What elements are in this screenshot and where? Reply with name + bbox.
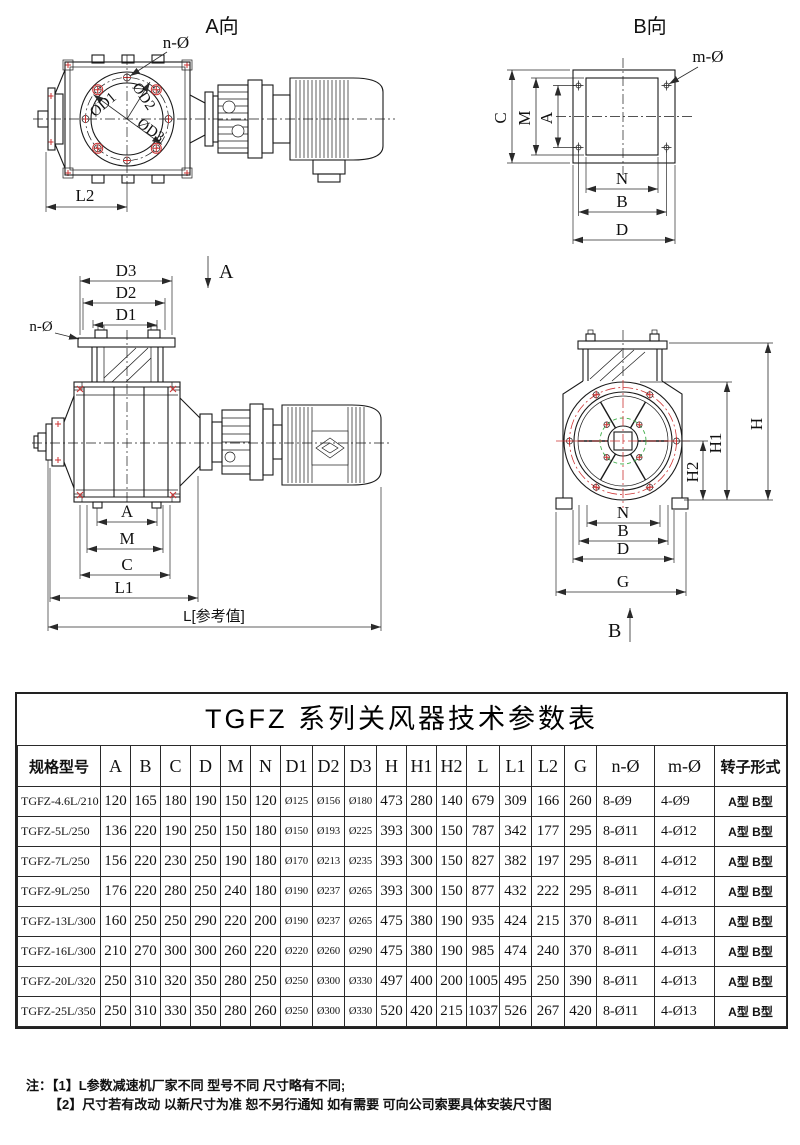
value-cell: 382 <box>500 847 532 877</box>
dim-label-m: M <box>515 110 534 125</box>
value-cell: Ø193 <box>313 817 345 847</box>
value-cell: Ø237 <box>313 907 345 937</box>
value-cell: Ø235 <box>345 847 377 877</box>
value-cell: 310 <box>131 997 161 1027</box>
model-cell: TGFZ-4.6L/210 <box>18 787 101 817</box>
value-cell: Ø250 <box>281 967 313 997</box>
value-cell: 220 <box>251 937 281 967</box>
dim-label-c-front: C <box>121 555 132 574</box>
hole-count-label: n-Ø <box>163 33 189 52</box>
datasheet-page: A向 ØD1 ØD2 ØD3 n-Ø <box>0 0 800 1145</box>
value-cell: A型 B型 <box>715 877 787 907</box>
value-cell: 390 <box>565 967 597 997</box>
value-cell: 8-Ø11 <box>597 907 655 937</box>
value-cell: 190 <box>437 937 467 967</box>
value-cell: 250 <box>532 967 565 997</box>
value-cell: A型 B型 <box>715 787 787 817</box>
value-cell: 300 <box>161 937 191 967</box>
value-cell: 330 <box>161 997 191 1027</box>
value-cell: 8-Ø11 <box>597 847 655 877</box>
value-cell: 295 <box>565 847 597 877</box>
value-cell: 176 <box>101 877 131 907</box>
table-header-row: 规格型号ABCDMND1D2D3HH1H2LL1L2Gn-Øm-Ø转子形式 <box>18 746 787 787</box>
value-cell: 215 <box>532 907 565 937</box>
dim-label-l1: L1 <box>115 578 134 597</box>
value-cell: 150 <box>437 817 467 847</box>
model-cell: TGFZ-13L/300 <box>18 907 101 937</box>
value-cell: 280 <box>221 997 251 1027</box>
value-cell: 180 <box>251 877 281 907</box>
value-cell: 350 <box>191 997 221 1027</box>
value-cell: 250 <box>101 967 131 997</box>
value-cell: 8-Ø11 <box>597 967 655 997</box>
value-cell: 290 <box>191 907 221 937</box>
note-1-text: 【1】L参数减速机厂家不同 型号不同 尺寸略有不同; <box>52 1078 345 1093</box>
value-cell: Ø190 <box>281 907 313 937</box>
value-cell: 220 <box>131 847 161 877</box>
table-row: TGFZ-4.6L/210120165180190150120Ø125Ø156Ø… <box>18 787 787 817</box>
value-cell: 250 <box>191 877 221 907</box>
value-cell: 280 <box>161 877 191 907</box>
value-cell: Ø170 <box>281 847 313 877</box>
dim-label-c: C <box>491 112 510 123</box>
value-cell: 787 <box>467 817 500 847</box>
value-cell: 270 <box>131 937 161 967</box>
value-cell: 370 <box>565 907 597 937</box>
end-view-drawing: H2 H1 H N B D G B <box>556 330 773 642</box>
dim-label-a-front: A <box>121 502 134 521</box>
value-cell: Ø190 <box>281 877 313 907</box>
value-cell: 4-Ø13 <box>655 997 715 1027</box>
value-cell: 400 <box>407 967 437 997</box>
value-cell: 215 <box>437 997 467 1027</box>
dim-label-m-front: M <box>119 529 134 548</box>
value-cell: 309 <box>500 787 532 817</box>
model-cell: TGFZ-9L/250 <box>18 877 101 907</box>
front-view-drawing: A D3 D2 D1 n-Ø <box>29 256 392 631</box>
table-row: TGFZ-13L/300160250250290220200Ø190Ø237Ø2… <box>18 907 787 937</box>
view-b-drawing: B向 m-Ø C M A N B D <box>491 15 724 244</box>
hole-count-label-m: m-Ø <box>692 47 723 66</box>
dim-label-h1: H1 <box>706 433 725 454</box>
value-cell: 827 <box>467 847 500 877</box>
value-cell: 220 <box>131 817 161 847</box>
dim-label-h2: H2 <box>683 462 702 483</box>
value-cell: 4-Ø13 <box>655 967 715 997</box>
value-cell: A型 B型 <box>715 997 787 1027</box>
value-cell: Ø150 <box>281 817 313 847</box>
dim-label-d2: D2 <box>116 283 137 302</box>
note-line-2: 【2】尺寸若有改动 以新尺寸为准 恕不另行通知 如有需要 可向公司索要具体安装尺… <box>49 1095 552 1114</box>
col-header: 规格型号 <box>18 746 101 787</box>
value-cell: Ø213 <box>313 847 345 877</box>
dim-label-h: H <box>747 418 766 430</box>
value-cell: Ø260 <box>313 937 345 967</box>
value-cell: 120 <box>101 787 131 817</box>
value-cell: 320 <box>161 967 191 997</box>
value-cell: 474 <box>500 937 532 967</box>
spec-table-section: TGFZ 系列关风器技术参数表 规格型号ABCDMND1D2D3HH1H2LL1… <box>15 692 788 1029</box>
value-cell: 1005 <box>467 967 500 997</box>
value-cell: 370 <box>565 937 597 967</box>
col-header: D <box>191 746 221 787</box>
col-header: D3 <box>345 746 377 787</box>
view-b-title: B向 <box>633 15 666 38</box>
note-2-text: 【2】尺寸若有改动 以新尺寸为准 恕不另行通知 如有需要 可向公司索要具体安装尺… <box>49 1097 552 1112</box>
value-cell: 260 <box>565 787 597 817</box>
value-cell: Ø265 <box>345 877 377 907</box>
model-cell: TGFZ-25L/350 <box>18 997 101 1027</box>
value-cell: 250 <box>191 847 221 877</box>
value-cell: 473 <box>377 787 407 817</box>
value-cell: A型 B型 <box>715 847 787 877</box>
value-cell: 877 <box>467 877 500 907</box>
value-cell: 280 <box>221 967 251 997</box>
value-cell: 260 <box>221 937 251 967</box>
value-cell: Ø225 <box>345 817 377 847</box>
value-cell: 300 <box>407 847 437 877</box>
value-cell: 150 <box>221 787 251 817</box>
value-cell: 197 <box>532 847 565 877</box>
table-row: TGFZ-5L/250136220190250150180Ø150Ø193Ø22… <box>18 817 787 847</box>
value-cell: 250 <box>101 997 131 1027</box>
col-header: A <box>101 746 131 787</box>
value-cell: 250 <box>191 817 221 847</box>
value-cell: 260 <box>251 997 281 1027</box>
value-cell: 200 <box>251 907 281 937</box>
value-cell: 156 <box>101 847 131 877</box>
table-title: TGFZ 系列关风器技术参数表 <box>17 694 786 745</box>
dim-label-l-ref: L[参考值] <box>183 608 245 625</box>
notes: 注：【1】L参数减速机厂家不同 型号不同 尺寸略有不同; 【2】尺寸若有改动 以… <box>26 1076 552 1114</box>
section-marker-a: A <box>219 261 234 283</box>
col-header: N <box>251 746 281 787</box>
value-cell: 4-Ø13 <box>655 937 715 967</box>
value-cell: 350 <box>191 967 221 997</box>
value-cell: 432 <box>500 877 532 907</box>
value-cell: 165 <box>131 787 161 817</box>
note-prefix: 注： <box>26 1078 52 1093</box>
table-row: TGFZ-25L/350250310330350280260Ø250Ø300Ø3… <box>18 997 787 1027</box>
value-cell: 190 <box>221 847 251 877</box>
dim-label-d1: D1 <box>116 305 137 324</box>
hole-count-label-front: n-Ø <box>29 319 52 335</box>
value-cell: 220 <box>131 877 161 907</box>
value-cell: Ø156 <box>313 787 345 817</box>
table-row: TGFZ-9L/250176220280250240180Ø190Ø237Ø26… <box>18 877 787 907</box>
value-cell: 4-Ø12 <box>655 877 715 907</box>
value-cell: 250 <box>131 907 161 937</box>
value-cell: 475 <box>377 907 407 937</box>
value-cell: 180 <box>251 817 281 847</box>
spec-table: 规格型号ABCDMND1D2D3HH1H2LL1L2Gn-Øm-Ø转子形式 TG… <box>17 745 787 1027</box>
value-cell: 300 <box>407 877 437 907</box>
value-cell: 4-Ø13 <box>655 907 715 937</box>
value-cell: 230 <box>161 847 191 877</box>
value-cell: 250 <box>251 967 281 997</box>
col-header: n-Ø <box>597 746 655 787</box>
value-cell: Ø237 <box>313 877 345 907</box>
value-cell: 526 <box>500 997 532 1027</box>
value-cell: 190 <box>161 817 191 847</box>
col-header: L1 <box>500 746 532 787</box>
value-cell: 520 <box>377 997 407 1027</box>
note-line-1: 注：【1】L参数减速机厂家不同 型号不同 尺寸略有不同; <box>26 1076 552 1095</box>
dim-label-g: G <box>617 572 629 591</box>
value-cell: 380 <box>407 937 437 967</box>
col-header: H1 <box>407 746 437 787</box>
dim-label-b: B <box>616 192 627 211</box>
value-cell: 240 <box>532 937 565 967</box>
col-header: B <box>131 746 161 787</box>
value-cell: 240 <box>221 877 251 907</box>
value-cell: 136 <box>101 817 131 847</box>
value-cell: 177 <box>532 817 565 847</box>
value-cell: A型 B型 <box>715 907 787 937</box>
value-cell: 985 <box>467 937 500 967</box>
col-header: m-Ø <box>655 746 715 787</box>
value-cell: 140 <box>437 787 467 817</box>
value-cell: A型 B型 <box>715 817 787 847</box>
model-cell: TGFZ-5L/250 <box>18 817 101 847</box>
value-cell: Ø330 <box>345 997 377 1027</box>
value-cell: 420 <box>565 997 597 1027</box>
value-cell: 495 <box>500 967 532 997</box>
value-cell: 497 <box>377 967 407 997</box>
col-header: D1 <box>281 746 313 787</box>
value-cell: Ø265 <box>345 907 377 937</box>
view-a-drawing: A向 ØD1 ØD2 ØD3 n-Ø <box>33 15 395 212</box>
value-cell: 220 <box>221 907 251 937</box>
value-cell: A型 B型 <box>715 937 787 967</box>
value-cell: 4-Ø9 <box>655 787 715 817</box>
col-header: H <box>377 746 407 787</box>
value-cell: 4-Ø12 <box>655 817 715 847</box>
value-cell: 210 <box>101 937 131 967</box>
col-header: H2 <box>437 746 467 787</box>
col-header: D2 <box>313 746 345 787</box>
value-cell: Ø290 <box>345 937 377 967</box>
dim-label-n-end: N <box>617 503 629 522</box>
value-cell: 380 <box>407 907 437 937</box>
value-cell: 166 <box>532 787 565 817</box>
value-cell: 150 <box>437 847 467 877</box>
value-cell: 1037 <box>467 997 500 1027</box>
dim-label-d-end: D <box>617 539 629 558</box>
value-cell: 8-Ø11 <box>597 877 655 907</box>
value-cell: 267 <box>532 997 565 1027</box>
model-cell: TGFZ-7L/250 <box>18 847 101 877</box>
col-header: L2 <box>532 746 565 787</box>
col-header: 转子形式 <box>715 746 787 787</box>
value-cell: 935 <box>467 907 500 937</box>
value-cell: 150 <box>221 817 251 847</box>
col-header: C <box>161 746 191 787</box>
dim-label-a: A <box>537 111 556 124</box>
value-cell: Ø250 <box>281 997 313 1027</box>
table-row: TGFZ-20L/320250310320350280250Ø250Ø300Ø3… <box>18 967 787 997</box>
section-marker-b: B <box>608 620 621 642</box>
table-row: TGFZ-7L/250156220230250190180Ø170Ø213Ø23… <box>18 847 787 877</box>
value-cell: 342 <box>500 817 532 847</box>
value-cell: 393 <box>377 877 407 907</box>
value-cell: 475 <box>377 937 407 967</box>
value-cell: 8-Ø11 <box>597 817 655 847</box>
value-cell: 180 <box>251 847 281 877</box>
value-cell: Ø220 <box>281 937 313 967</box>
value-cell: 420 <box>407 997 437 1027</box>
value-cell: Ø330 <box>345 967 377 997</box>
dim-label-d3: D3 <box>116 261 137 280</box>
table-row: TGFZ-16L/300210270300300260220Ø220Ø260Ø2… <box>18 937 787 967</box>
dim-label-d: D <box>616 220 628 239</box>
dim-label-n: N <box>616 169 628 188</box>
table-body: TGFZ-4.6L/210120165180190150120Ø125Ø156Ø… <box>18 787 787 1027</box>
value-cell: 150 <box>437 877 467 907</box>
value-cell: 8-Ø11 <box>597 937 655 967</box>
model-cell: TGFZ-20L/320 <box>18 967 101 997</box>
value-cell: Ø300 <box>313 997 345 1027</box>
value-cell: Ø300 <box>313 967 345 997</box>
value-cell: 200 <box>437 967 467 997</box>
dim-label-l2: L2 <box>76 186 95 205</box>
model-cell: TGFZ-16L/300 <box>18 937 101 967</box>
value-cell: 8-Ø9 <box>597 787 655 817</box>
value-cell: 4-Ø12 <box>655 847 715 877</box>
value-cell: 300 <box>191 937 221 967</box>
value-cell: A型 B型 <box>715 967 787 997</box>
col-header: L <box>467 746 500 787</box>
value-cell: 295 <box>565 817 597 847</box>
value-cell: 310 <box>131 967 161 997</box>
value-cell: 250 <box>161 907 191 937</box>
value-cell: 393 <box>377 817 407 847</box>
value-cell: 120 <box>251 787 281 817</box>
technical-drawings: A向 ØD1 ØD2 ØD3 n-Ø <box>0 0 800 692</box>
dim-label-b-end: B <box>617 521 628 540</box>
value-cell: 180 <box>161 787 191 817</box>
col-header: M <box>221 746 251 787</box>
col-header: G <box>565 746 597 787</box>
value-cell: 679 <box>467 787 500 817</box>
value-cell: 280 <box>407 787 437 817</box>
dim-label-d1: ØD1 <box>87 89 120 120</box>
value-cell: Ø180 <box>345 787 377 817</box>
value-cell: 160 <box>101 907 131 937</box>
value-cell: 424 <box>500 907 532 937</box>
value-cell: 8-Ø11 <box>597 997 655 1027</box>
value-cell: 393 <box>377 847 407 877</box>
value-cell: 300 <box>407 817 437 847</box>
value-cell: Ø125 <box>281 787 313 817</box>
value-cell: 190 <box>191 787 221 817</box>
view-a-title: A向 <box>205 15 238 38</box>
value-cell: 295 <box>565 877 597 907</box>
value-cell: 222 <box>532 877 565 907</box>
value-cell: 190 <box>437 907 467 937</box>
